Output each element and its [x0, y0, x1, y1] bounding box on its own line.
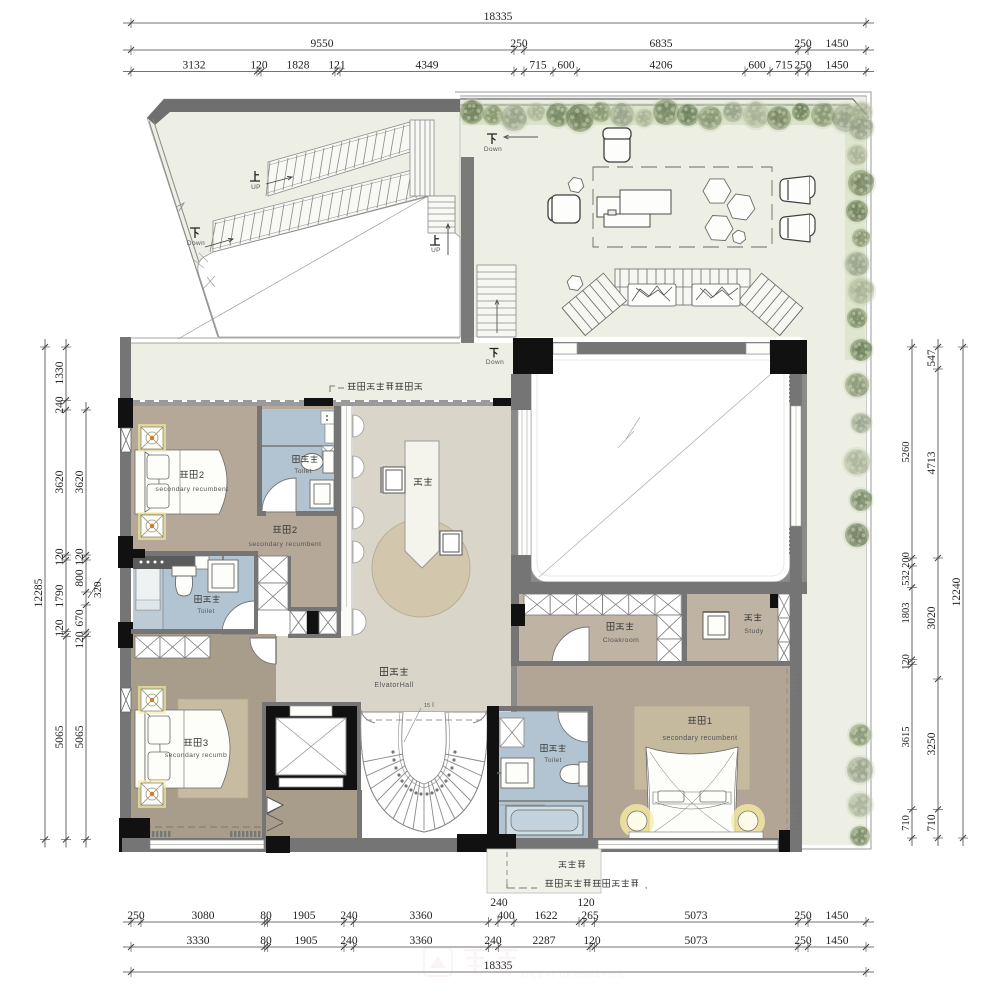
svg-text:3: 3 — [203, 738, 208, 749]
svg-text:1450: 1450 — [826, 935, 849, 947]
svg-text:120: 120 — [250, 60, 268, 72]
svg-text:120: 120 — [577, 897, 595, 909]
svg-text:3250: 3250 — [926, 732, 938, 755]
svg-text:5073: 5073 — [685, 910, 708, 922]
svg-text:80: 80 — [260, 935, 272, 947]
svg-text:250: 250 — [510, 38, 528, 50]
svg-text:80: 80 — [260, 910, 272, 922]
svg-text:3615: 3615 — [901, 727, 912, 748]
svg-text:3620: 3620 — [54, 470, 66, 493]
svg-text:240: 240 — [484, 935, 502, 947]
svg-text:Down: Down — [486, 359, 504, 366]
svg-text:547: 547 — [926, 349, 938, 367]
svg-text:400: 400 — [497, 910, 515, 922]
svg-text:1450: 1450 — [826, 60, 849, 72]
svg-text:secondary recumb: secondary recumb — [165, 752, 227, 759]
svg-text:2287: 2287 — [533, 935, 556, 947]
svg-text:5260: 5260 — [901, 442, 912, 463]
svg-text:250: 250 — [794, 935, 812, 947]
svg-text:2: 2 — [292, 525, 297, 536]
svg-text:3020: 3020 — [926, 606, 938, 629]
svg-text:1450: 1450 — [826, 910, 849, 922]
svg-text:1330: 1330 — [54, 361, 66, 384]
svg-text:120: 120 — [74, 631, 86, 649]
svg-text:Toilet: Toilet — [544, 757, 562, 764]
svg-text:710: 710 — [926, 814, 938, 832]
svg-text:3132: 3132 — [183, 60, 206, 72]
svg-text:Study: Study — [744, 628, 764, 635]
svg-text:240: 240 — [54, 396, 66, 414]
svg-text:5065: 5065 — [54, 725, 66, 748]
svg-text:240: 240 — [340, 935, 358, 947]
svg-text:121: 121 — [328, 60, 346, 72]
svg-text:120: 120 — [54, 548, 66, 566]
svg-text:240: 240 — [490, 897, 508, 909]
svg-text:265: 265 — [581, 910, 599, 922]
svg-text:600: 600 — [748, 60, 766, 72]
svg-text:Down: Down — [484, 146, 502, 153]
svg-text:710: 710 — [901, 815, 912, 831]
svg-text:Cloakroom: Cloakroom — [603, 637, 639, 644]
svg-text:200: 200 — [901, 552, 912, 568]
svg-text:1803: 1803 — [901, 603, 912, 624]
svg-text:12240: 12240 — [951, 577, 963, 606]
svg-text:4349: 4349 — [416, 60, 439, 72]
svg-text:1905: 1905 — [295, 935, 318, 947]
svg-text:320: 320 — [92, 581, 104, 598]
svg-text:UP: UP — [251, 184, 261, 191]
svg-text:4713: 4713 — [926, 451, 938, 474]
svg-text:5073: 5073 — [685, 935, 708, 947]
svg-text:120: 120 — [54, 619, 66, 637]
svg-text:715: 715 — [775, 60, 793, 72]
svg-text:3080: 3080 — [192, 910, 215, 922]
svg-text:1: 1 — [707, 716, 712, 727]
svg-text:600: 600 — [557, 60, 575, 72]
svg-text:532: 532 — [901, 570, 912, 586]
svg-text:670: 670 — [74, 609, 86, 627]
svg-text:1790: 1790 — [54, 584, 66, 607]
svg-text:3330: 3330 — [187, 935, 210, 947]
svg-text:,: , — [645, 881, 647, 890]
svg-text:XINGYI DECORATION: XINGYI DECORATION — [520, 973, 626, 980]
svg-text:Toilet: Toilet — [294, 468, 312, 475]
svg-text:250: 250 — [794, 910, 812, 922]
svg-text:secondary recumbent: secondary recumbent — [249, 541, 322, 548]
svg-text:secondary recumbent: secondary recumbent — [663, 735, 738, 742]
svg-text:4206: 4206 — [650, 60, 673, 72]
svg-text:secondary recumbent: secondary recumbent — [156, 486, 229, 493]
svg-text:UP: UP — [431, 247, 441, 254]
svg-text:Down: Down — [187, 240, 205, 247]
svg-text:240: 240 — [340, 910, 358, 922]
svg-text:Toilet: Toilet — [197, 608, 215, 615]
svg-text:1828: 1828 — [287, 60, 310, 72]
svg-text:ElvatorHall: ElvatorHall — [374, 680, 413, 689]
svg-text:120: 120 — [74, 548, 86, 566]
svg-text:120: 120 — [583, 935, 601, 947]
svg-text:15: 15 — [424, 703, 430, 709]
svg-text:6835: 6835 — [650, 38, 673, 50]
svg-text:250: 250 — [794, 38, 812, 50]
svg-text:18335: 18335 — [484, 11, 513, 23]
svg-text:2: 2 — [199, 470, 204, 481]
svg-text:3620: 3620 — [74, 470, 86, 493]
svg-text:800: 800 — [74, 569, 86, 587]
svg-text:250: 250 — [127, 910, 145, 922]
svg-text:3360: 3360 — [410, 910, 433, 922]
svg-text:715: 715 — [529, 60, 547, 72]
svg-text:9550: 9550 — [311, 38, 334, 50]
svg-text:5065: 5065 — [74, 725, 86, 748]
svg-text:120: 120 — [901, 654, 912, 670]
svg-text:3360: 3360 — [410, 935, 433, 947]
svg-text:12285: 12285 — [33, 578, 45, 607]
svg-text:1905: 1905 — [293, 910, 316, 922]
svg-text:250: 250 — [794, 60, 812, 72]
svg-text:1622: 1622 — [535, 910, 558, 922]
svg-text:1450: 1450 — [826, 38, 849, 50]
